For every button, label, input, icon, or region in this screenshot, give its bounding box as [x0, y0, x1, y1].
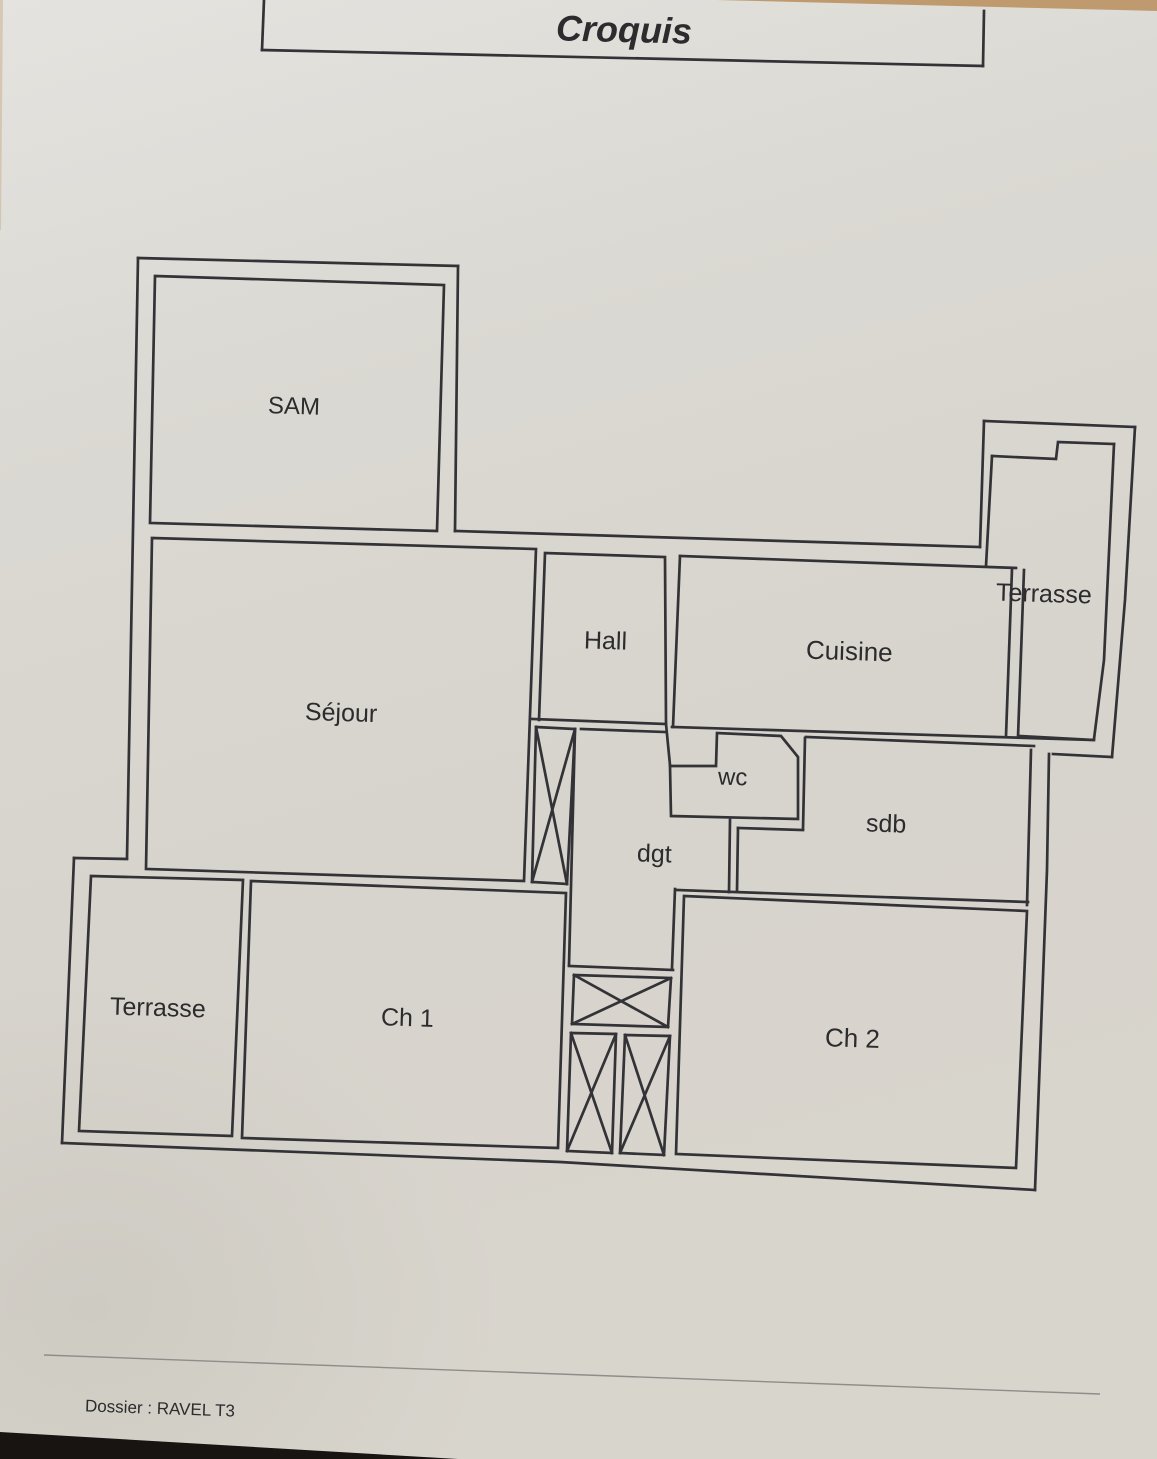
svg-text:sdb: sdb — [866, 809, 907, 838]
svg-text:wc: wc — [717, 763, 748, 791]
svg-text:Séjour: Séjour — [305, 698, 378, 728]
svg-text:dgt: dgt — [637, 839, 673, 868]
svg-text:Cuisine: Cuisine — [806, 635, 894, 668]
svg-text:Hall: Hall — [584, 626, 628, 655]
svg-text:Croquis: Croquis — [556, 7, 693, 51]
svg-text:Terrasse: Terrasse — [996, 578, 1093, 609]
svg-text:Terrasse: Terrasse — [110, 992, 207, 1023]
svg-text:Ch 1: Ch 1 — [381, 1003, 435, 1033]
svg-text:Ch 2: Ch 2 — [825, 1022, 881, 1054]
svg-text:SAM: SAM — [268, 392, 321, 421]
